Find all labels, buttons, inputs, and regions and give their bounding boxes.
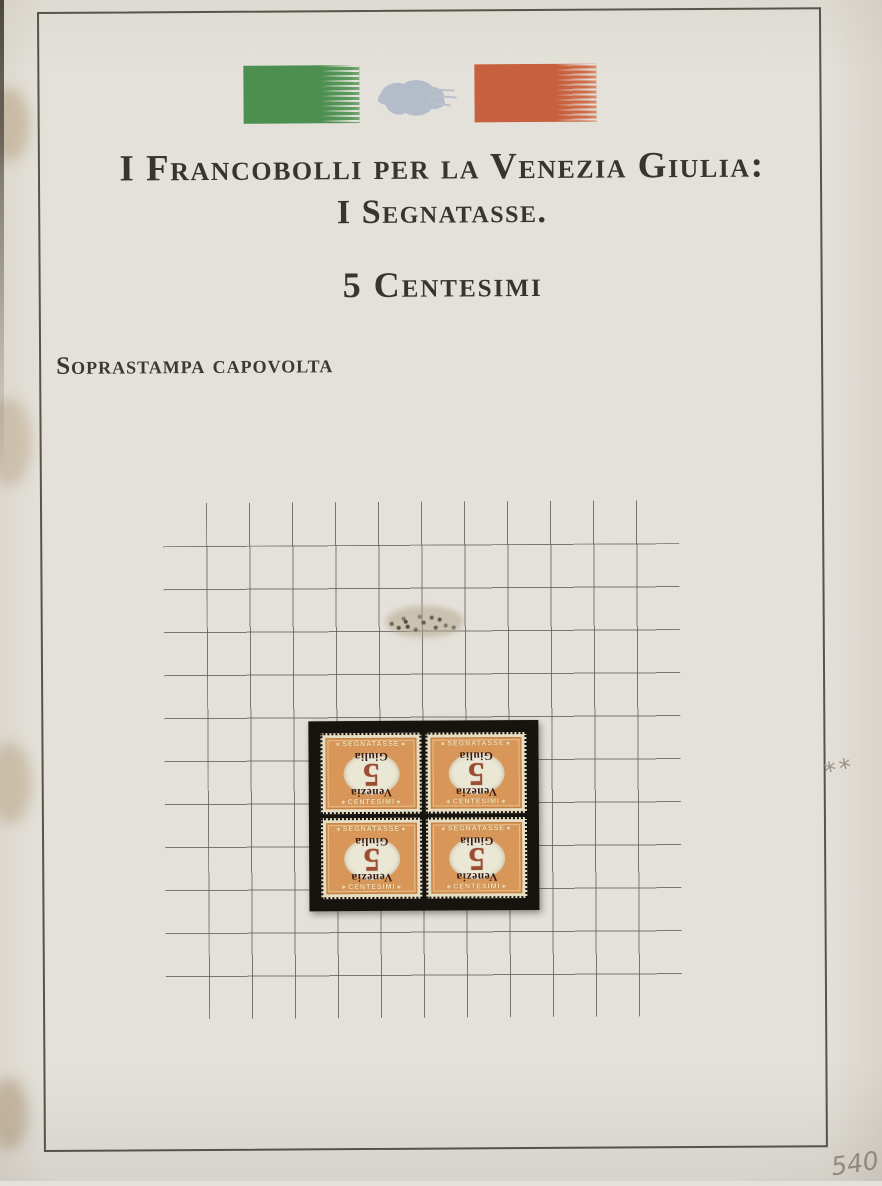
band-ornament: ∗: [340, 800, 348, 806]
flag-red-swatch: [474, 64, 596, 123]
stamp: ∗SEGNATASSE∗ Venezia 5 Giulia ∗CENTESIMI…: [320, 733, 421, 815]
brush-streaks: [320, 65, 360, 123]
stamp-design: ∗SEGNATASSE∗ Venezia 5 Giulia ∗CENTESIMI…: [325, 738, 416, 810]
stamp-design: ∗SEGNATASSE∗ Venezia 5 Giulia ∗CENTESIMI…: [431, 822, 522, 894]
stamp-bottom-band: ∗CENTESIMI∗: [329, 884, 414, 892]
band-ornament: ∗: [395, 885, 403, 891]
stamp-bottom-band: ∗CENTESIMI∗: [434, 798, 519, 806]
stamp-bottom-label: CENTESIMI: [348, 799, 395, 806]
photo-left-edge-shadow: [0, 0, 4, 470]
flag-map-blob: [370, 71, 462, 124]
stamp-bottom-label: CENTESIMI: [453, 883, 500, 890]
italian-flag-brushstroke: [240, 61, 600, 129]
band-ornament: ∗: [500, 799, 508, 805]
stamp: ∗SEGNATASSE∗ Venezia 5 Giulia ∗CENTESIMI…: [321, 818, 422, 900]
stamp: ∗SEGNATASSE∗ Venezia 5 Giulia ∗CENTESIMI…: [426, 817, 527, 899]
overprint-line: Giulia: [459, 749, 493, 761]
band-ornament: ∗: [445, 799, 453, 805]
stamp-design: ∗SEGNATASSE∗ Venezia 5 Giulia ∗CENTESIMI…: [326, 823, 417, 895]
overprint-line: Giulia: [355, 834, 389, 846]
band-ornament: ∗: [445, 884, 453, 890]
page-title: I Francobolli per la Venezia Giulia:: [1, 143, 882, 191]
band-ornament: ∗: [340, 885, 348, 891]
stamp-design: ∗SEGNATASSE∗ Venezia 5 Giulia ∗CENTESIMI…: [430, 737, 521, 809]
photographed-album-page: { "header": { "title_line1": "I Francobo…: [0, 0, 882, 1181]
pencil-mint-mark: **: [822, 752, 857, 786]
flag-green-swatch: [243, 65, 359, 124]
stamp-bottom-band: ∗CENTESIMI∗: [434, 883, 519, 891]
variety-heading: Soprastampa capovolta: [56, 351, 333, 381]
band-ornament: ∗: [395, 800, 403, 806]
stamp-bottom-band: ∗CENTESIMI∗: [329, 799, 414, 807]
stamp-block-mount: ∗SEGNATASSE∗ Venezia 5 Giulia ∗CENTESIMI…: [308, 720, 539, 911]
brush-streaks: [555, 64, 597, 122]
stamp: ∗SEGNATASSE∗ Venezia 5 Giulia ∗CENTESIMI…: [425, 732, 526, 814]
page-subtitle: I Segnatasse.: [1, 191, 882, 234]
stamp-bottom-label: CENTESIMI: [453, 798, 500, 805]
pencil-value-note: 540: [829, 1146, 880, 1182]
overprint-line: Giulia: [460, 834, 494, 846]
album-page: I Francobolli per la Venezia Giulia: I S…: [0, 0, 882, 1181]
denomination-heading: 5 Centesimi: [2, 261, 882, 308]
hinge-stain: [404, 620, 408, 624]
stamp-bottom-label: CENTESIMI: [348, 884, 395, 891]
band-ornament: ∗: [500, 884, 508, 890]
map-blob-shape: [378, 80, 445, 116]
overprint-line: Giulia: [354, 749, 388, 761]
